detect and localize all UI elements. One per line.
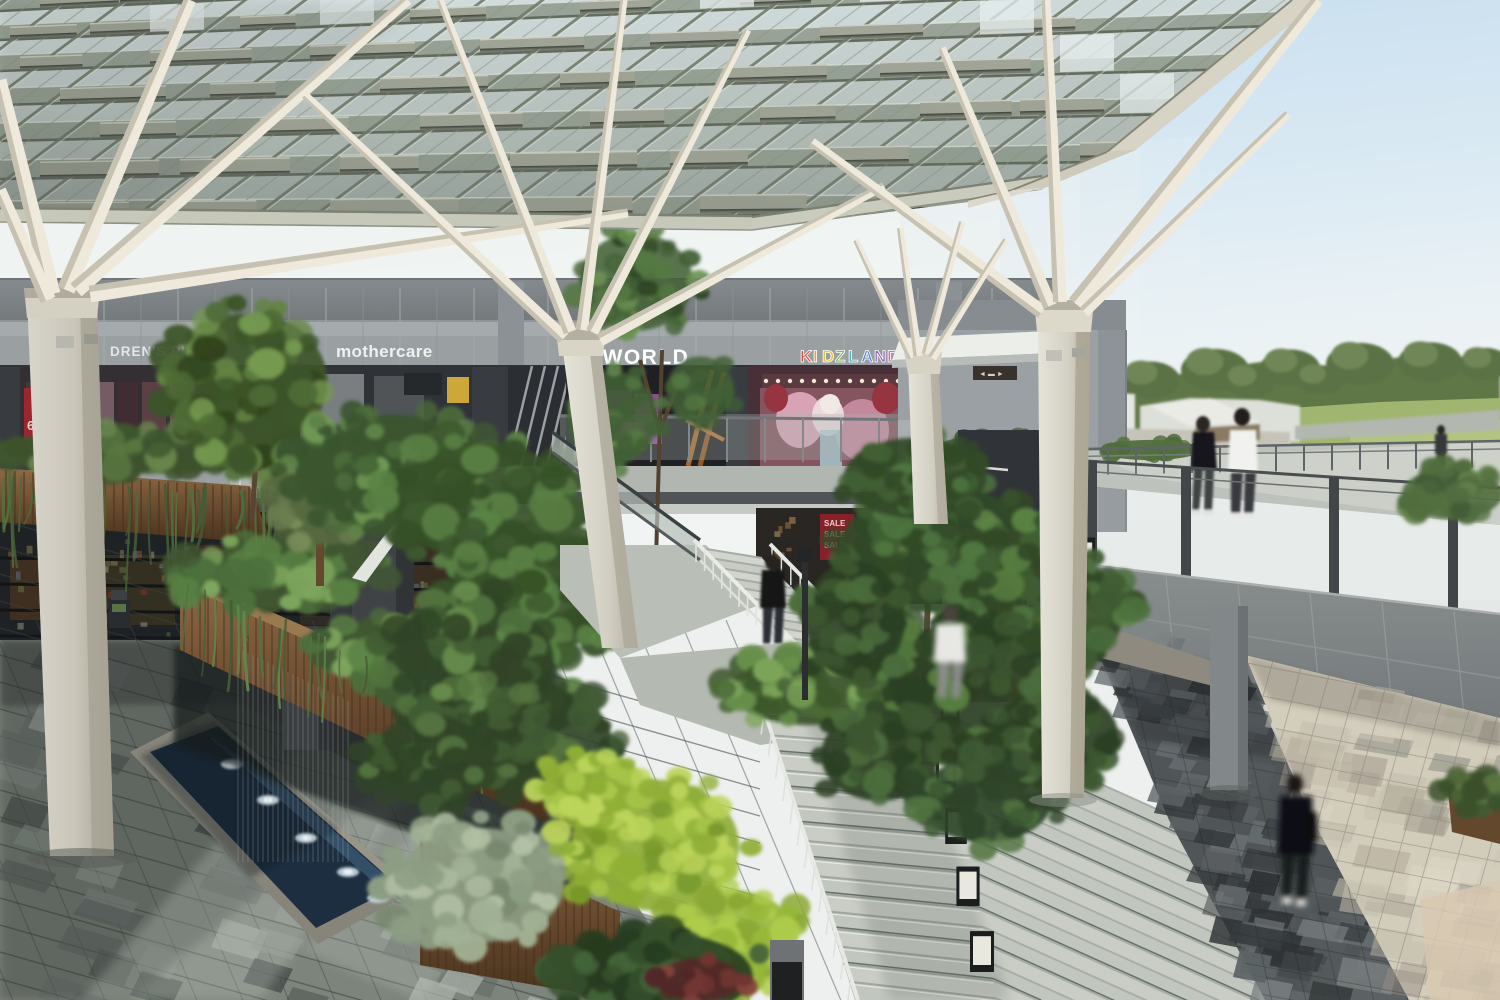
svg-text:I: I — [813, 347, 818, 366]
svg-text:mothercare: mothercare — [336, 342, 433, 361]
svg-text:A: A — [861, 347, 873, 366]
svg-text:◄ ▬ ►: ◄ ▬ ► — [979, 371, 1004, 378]
svg-text:K: K — [800, 347, 813, 366]
svg-text:L: L — [848, 347, 858, 366]
svg-text:SALE: SALE — [824, 519, 846, 528]
svg-text:Z: Z — [835, 347, 845, 366]
svg-text:N: N — [874, 347, 886, 366]
svg-text:D: D — [822, 347, 834, 366]
